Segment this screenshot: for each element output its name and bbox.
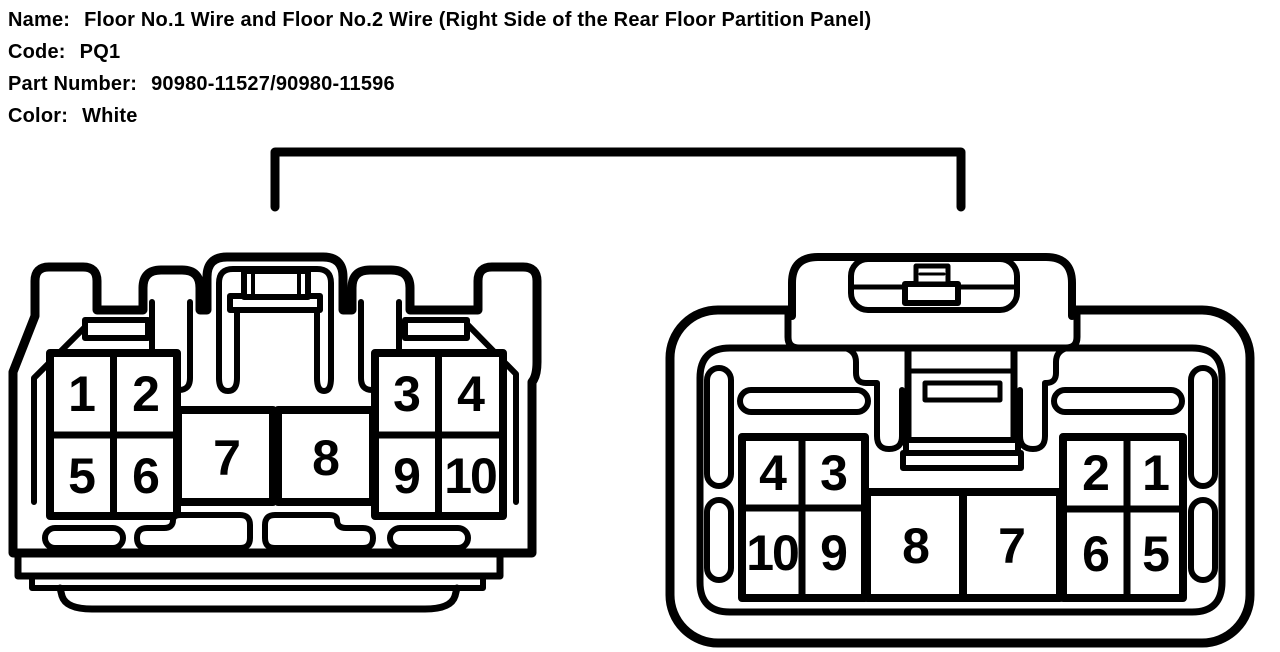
left-bottom-slot-1	[45, 528, 123, 548]
left-connector-base-foot	[60, 588, 457, 609]
right-top-tab-lock-lower	[905, 284, 958, 303]
name-value: Floor No.1 Wire and Floor No.2 Wire (Rig…	[84, 4, 871, 36]
left-pin-4-label: 4	[457, 366, 485, 422]
color-value: White	[82, 100, 137, 132]
right-vertical-slot-left-lower	[707, 500, 731, 580]
left-pin-9-label: 9	[393, 448, 419, 504]
right-pin-7-label: 7	[998, 518, 1024, 574]
info-row-code: Code: PQ1	[8, 36, 871, 68]
left-connector-base-step	[18, 555, 500, 576]
right-tower-window	[925, 383, 1000, 400]
left-pin-5-label: 5	[68, 448, 95, 504]
part-number-label: Part Number:	[8, 68, 137, 100]
left-bottom-slot-4	[390, 528, 468, 548]
right-pin-9-label: 9	[820, 525, 846, 581]
connector-pair-bracket	[275, 152, 961, 207]
left-pin-1-label: 1	[68, 366, 95, 422]
left-pin-3-label: 3	[393, 366, 419, 422]
right-pin-4-label: 4	[759, 445, 787, 501]
right-tower-bar-2	[903, 453, 1021, 468]
right-pin-1-label: 1	[1142, 445, 1169, 501]
part-number-value: 90980-11527/90980-11596	[151, 68, 395, 100]
right-collar	[788, 312, 1077, 348]
right-pin-3-label: 3	[820, 445, 846, 501]
code-value: PQ1	[80, 36, 121, 68]
code-label: Code:	[8, 36, 66, 68]
right-vertical-slot-left-upper	[707, 368, 731, 486]
right-pin-8-label: 8	[902, 518, 929, 574]
connector-diagram-page: Name: Floor No.1 Wire and Floor No.2 Wir…	[0, 0, 1280, 652]
right-pin-10-label: 10	[746, 525, 798, 581]
color-label: Color:	[8, 100, 68, 132]
connector-info-header: Name: Floor No.1 Wire and Floor No.2 Wir…	[8, 4, 871, 132]
right-vertical-slot-right-upper	[1191, 368, 1215, 486]
info-row-part-number: Part Number: 90980-11527/90980-11596	[8, 68, 871, 100]
name-label: Name:	[8, 4, 70, 36]
left-pin-10-label: 10	[444, 448, 496, 504]
right-pin-5-label: 5	[1142, 526, 1169, 582]
info-row-color: Color: White	[8, 100, 871, 132]
right-pin-6-label: 6	[1082, 526, 1108, 582]
left-pin-7-label: 7	[213, 430, 239, 486]
right-pin-2-label: 2	[1082, 445, 1108, 501]
left-index-tab-right	[405, 320, 467, 338]
left-pin-2-label: 2	[132, 366, 158, 422]
right-connector: 4 3 10 9 8 7 2 1 6 5	[670, 257, 1250, 643]
left-pin-6-label: 6	[132, 448, 158, 504]
right-horizontal-slot-right	[1054, 390, 1182, 412]
left-connector: 1 2 5 6 7 8 3 4 9 10	[13, 257, 537, 609]
info-row-name: Name: Floor No.1 Wire and Floor No.2 Wir…	[8, 4, 871, 36]
right-horizontal-slot-left	[740, 390, 868, 412]
left-pin-8-label: 8	[312, 430, 339, 486]
right-vertical-slot-right-lower	[1191, 500, 1215, 580]
left-index-tab-left	[85, 320, 148, 338]
